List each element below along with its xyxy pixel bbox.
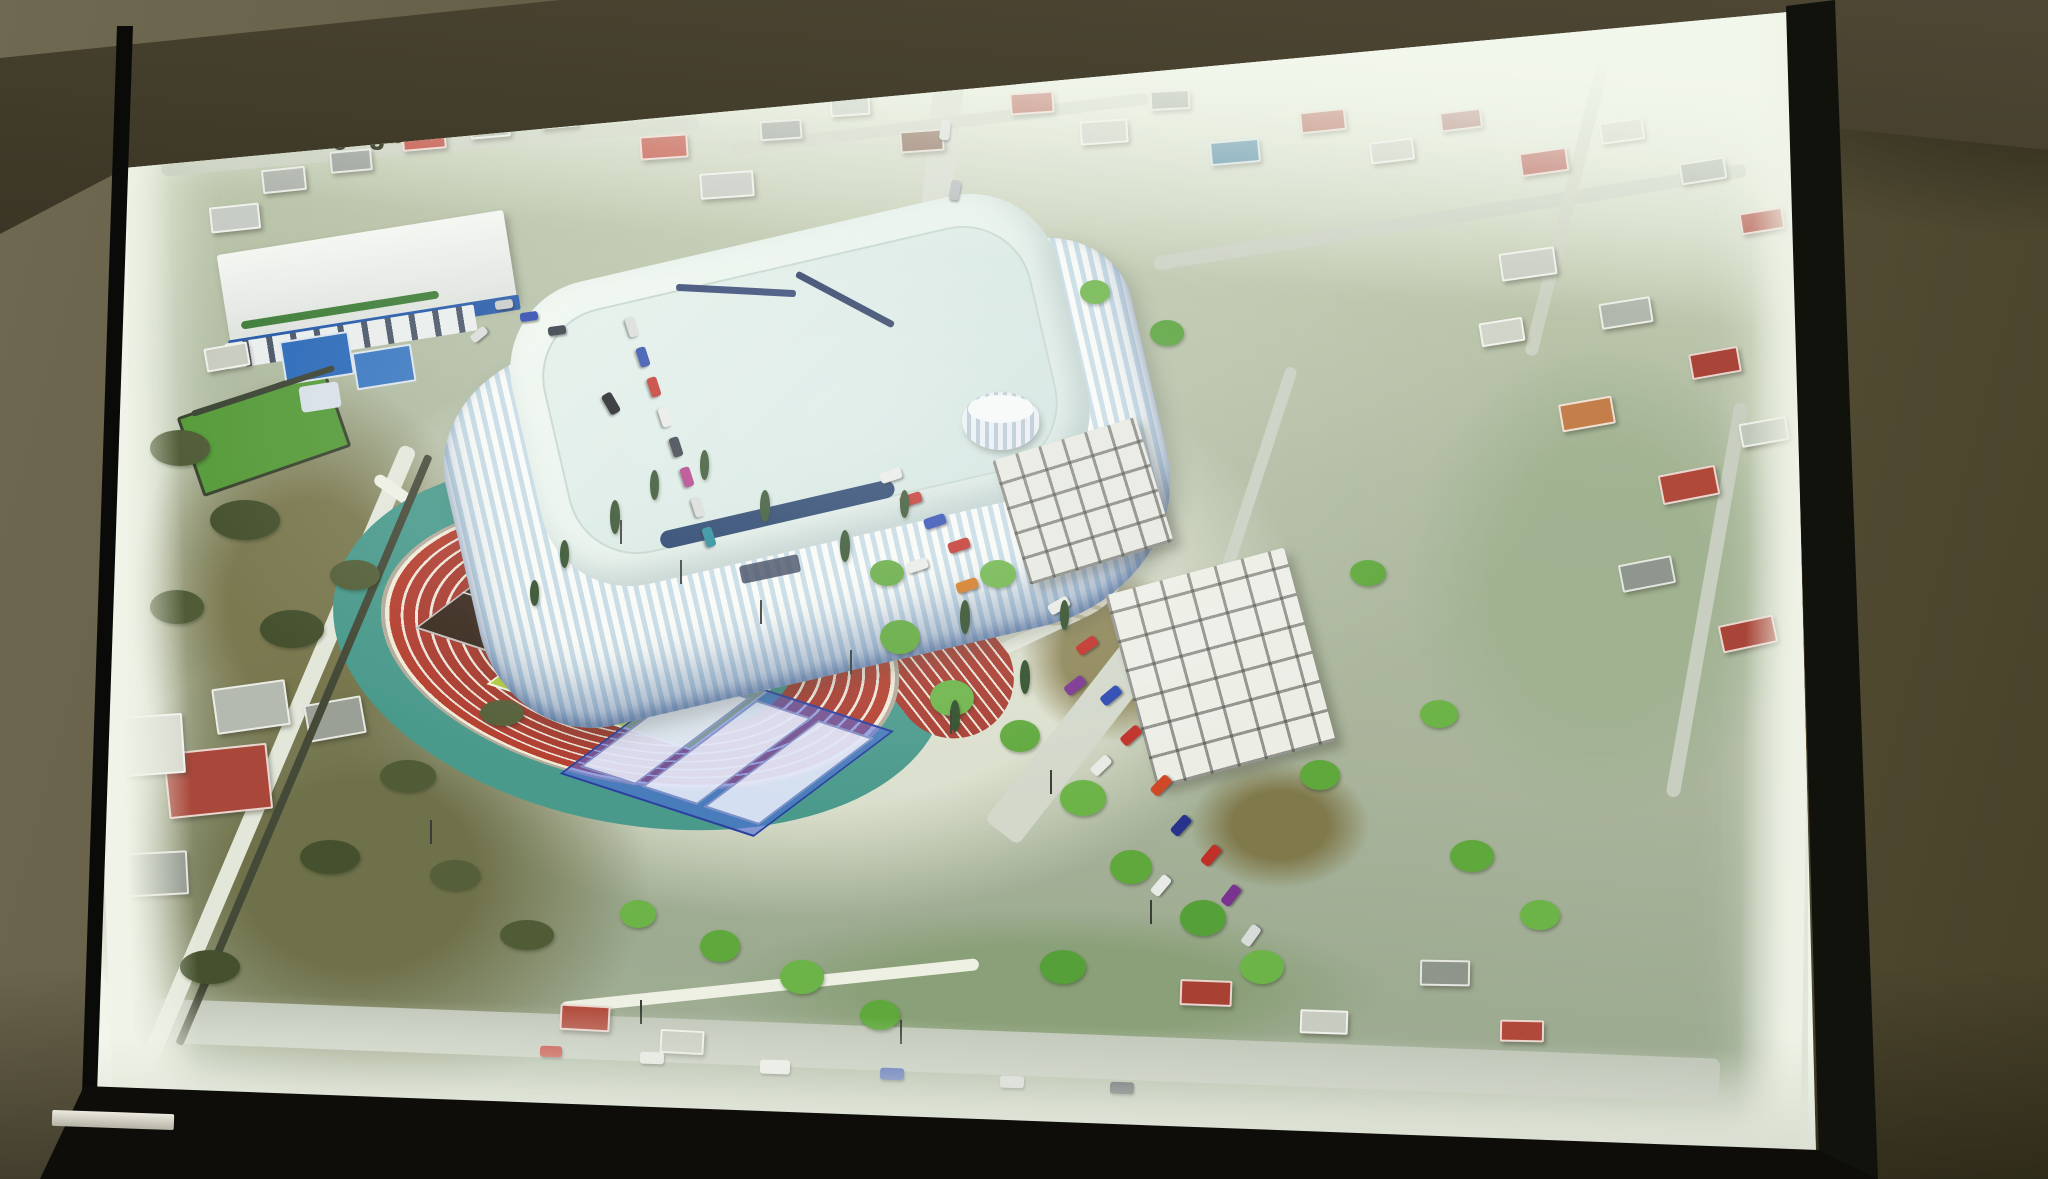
projector-glare	[0, 0, 2048, 1179]
photo-of-projection-screen: ფოტომონტაჟი	[0, 0, 2048, 1179]
projector-screen: ფოტომონტაჟი	[0, 0, 2048, 1179]
